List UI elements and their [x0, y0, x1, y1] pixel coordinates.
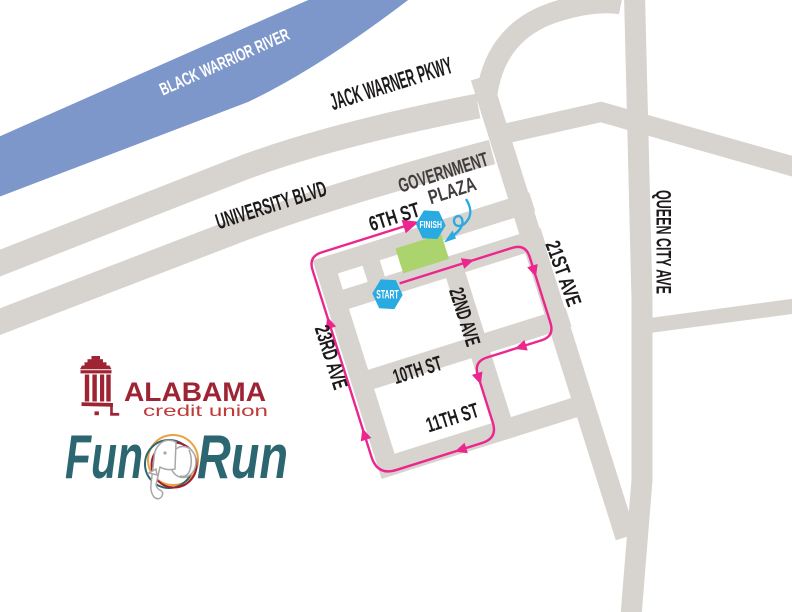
svg-text:QUEEN CITY AVE: QUEEN CITY AVE: [651, 190, 674, 294]
svg-text:credit union: credit union: [143, 403, 268, 420]
svg-text:START: START: [376, 289, 399, 301]
svg-text:FINISH: FINISH: [419, 219, 442, 231]
svg-text:Run: Run: [197, 423, 288, 492]
svg-text:10TH ST: 10TH ST: [390, 352, 445, 389]
svg-text:Fun: Fun: [65, 423, 143, 492]
